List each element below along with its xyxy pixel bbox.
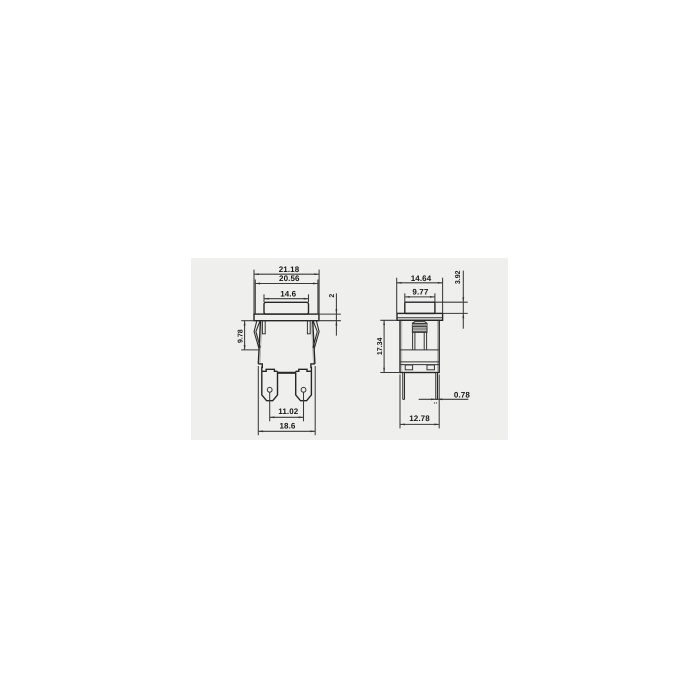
- svg-text:11.02: 11.02: [278, 407, 299, 416]
- svg-text:21.18: 21.18: [279, 265, 300, 274]
- svg-text:14.64: 14.64: [411, 274, 432, 283]
- svg-text:18.6: 18.6: [280, 421, 296, 430]
- svg-text:3.92: 3.92: [455, 270, 462, 284]
- svg-text:17.34: 17.34: [377, 338, 384, 356]
- svg-text:20.56: 20.56: [279, 274, 300, 283]
- svg-text:9.77: 9.77: [412, 287, 428, 296]
- svg-text:9.78: 9.78: [238, 329, 245, 343]
- svg-text:2: 2: [329, 294, 336, 298]
- svg-text:12.78: 12.78: [409, 414, 430, 423]
- svg-text:14.6: 14.6: [280, 290, 296, 299]
- svg-text:0.78: 0.78: [454, 390, 470, 399]
